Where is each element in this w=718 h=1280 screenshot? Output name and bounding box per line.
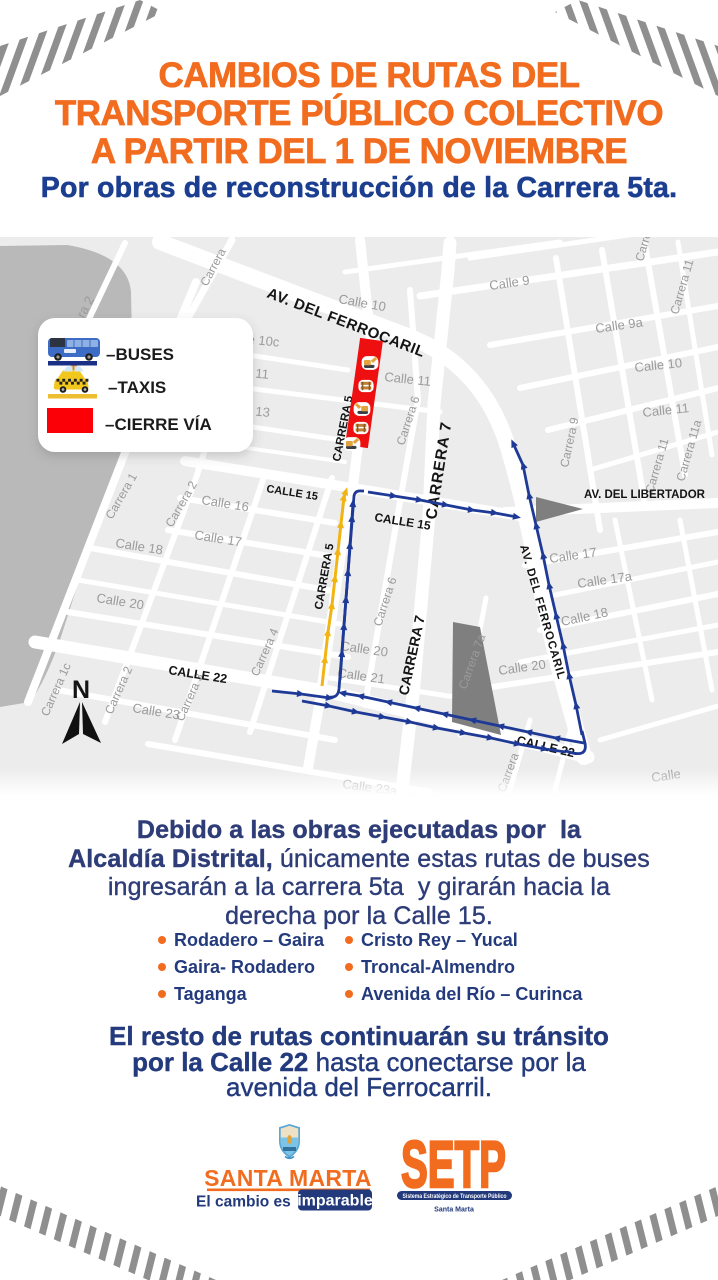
svg-text:SANTA MARTA: SANTA MARTA (204, 1165, 372, 1191)
svg-text:Sistema Estratégico de Transpo: Sistema Estratégico de Transporte Públic… (403, 1194, 507, 1200)
svg-text:–BUSES: –BUSES (106, 345, 174, 364)
svg-text:–TAXIS: –TAXIS (108, 378, 166, 397)
svg-text:N: N (72, 676, 90, 704)
svg-text:imparable: imparable (297, 1193, 373, 1210)
svg-text:–CIERRE VÍA: –CIERRE VÍA (105, 415, 212, 434)
svg-text:AV. DEL LIBERTADOR: AV. DEL LIBERTADOR (584, 489, 706, 501)
svg-text:SETP: SETP (401, 1127, 506, 1201)
svg-text:Santa Marta: Santa Marta (434, 1207, 474, 1214)
svg-text:El cambio es: El cambio es (196, 1194, 291, 1211)
